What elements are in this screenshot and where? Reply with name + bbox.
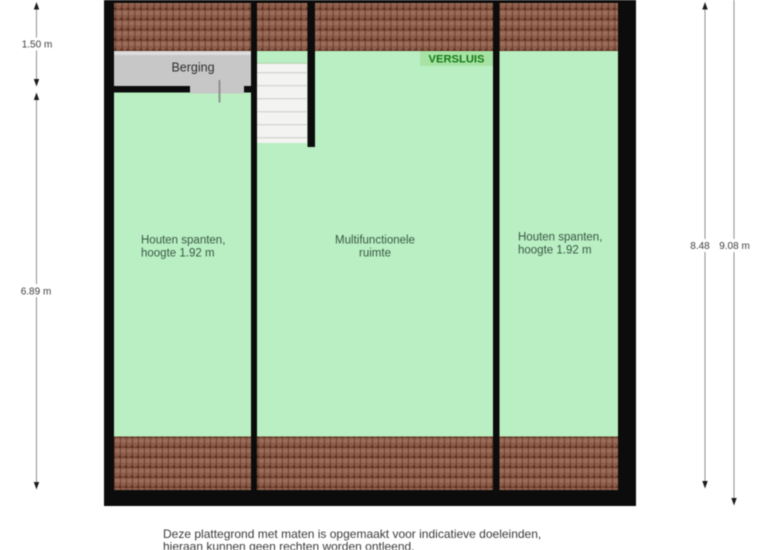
svg-text:Houten spanten,: Houten spanten, xyxy=(141,235,225,247)
svg-text:Multifunctionele: Multifunctionele xyxy=(335,235,415,247)
svg-text:1.50 m: 1.50 m xyxy=(22,40,53,51)
svg-text:VERSLUIS: VERSLUIS xyxy=(429,54,485,66)
svg-text:hoogte 1.92 m: hoogte 1.92 m xyxy=(518,245,592,257)
svg-text:Berging: Berging xyxy=(171,61,214,75)
svg-text:hieraan kunnen geen rechten wo: hieraan kunnen geen rechten worden ontle… xyxy=(163,540,415,550)
svg-text:9.08 m: 9.08 m xyxy=(719,241,750,252)
svg-text:Houten spanten,: Houten spanten, xyxy=(518,232,602,244)
svg-text:8.48: 8.48 xyxy=(690,241,710,252)
svg-text:hoogte 1.92 m: hoogte 1.92 m xyxy=(141,248,215,260)
svg-text:6.89 m: 6.89 m xyxy=(21,287,52,298)
svg-text:ruimte: ruimte xyxy=(359,248,391,260)
